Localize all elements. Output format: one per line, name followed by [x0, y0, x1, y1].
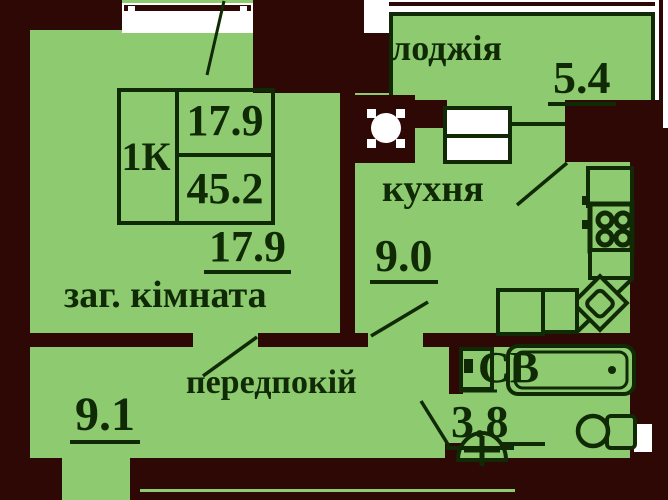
stove-burners [598, 213, 630, 245]
washing-machine-door [464, 359, 473, 373]
kitchen-counter [590, 250, 632, 278]
bathroom-label: СВ [478, 346, 539, 390]
wall-top-middle-lower [364, 33, 389, 93]
kitchen-label: кухня [382, 170, 484, 208]
bathtub-drain [608, 366, 616, 374]
wall-living-hallway-right [258, 333, 368, 347]
window-frame-notch [240, 6, 247, 11]
apartment-type-label: 1К [117, 88, 175, 225]
hallway-area: 9.1 [70, 392, 140, 444]
kitchen-sink-icon [573, 276, 627, 330]
loggia-glazing-outer-top [389, 2, 655, 6]
wall-vent-opening [634, 424, 652, 452]
stove-knob [582, 196, 590, 205]
living-room-area: 17.9 [204, 226, 291, 274]
hallway-label: передпокій [186, 366, 357, 400]
stove-knob [582, 220, 590, 229]
kitchen-window-sill-line [443, 134, 512, 138]
kitchen-area: 9.0 [370, 234, 438, 284]
apartment-total-area: 45.2 [179, 157, 271, 221]
balcony-door-swing [517, 163, 567, 205]
loggia-area: 5.4 [548, 56, 616, 106]
wall-bottom-left [30, 458, 62, 500]
wall-bottom-right [130, 458, 668, 500]
stove-icon [590, 204, 632, 251]
wall-bathroom-left-stub [449, 347, 463, 394]
floor-plan: 1К 17.9 45.2 лоджія 5.4 кухня 9.0 заг. к… [0, 0, 668, 500]
kitchen-counter [588, 168, 632, 206]
window-frame-line [124, 5, 251, 11]
bathroom-area: 3.8 [446, 400, 514, 450]
loggia-label: лоджія [391, 30, 502, 66]
window-frame-notch [128, 6, 135, 11]
loggia-gap-left [364, 0, 389, 33]
bathroom-door-swing [421, 401, 449, 446]
corner-counter-line [578, 279, 632, 331]
toilet-bowl [578, 416, 608, 446]
wall-top-middle [253, 0, 364, 93]
wall-left [0, 28, 30, 500]
apartment-living-area: 17.9 [179, 88, 271, 153]
wall-top-left [0, 0, 122, 30]
wall-living-hallway-left [30, 333, 193, 347]
cabinet-icon [543, 290, 577, 332]
wall-vent-block [352, 95, 415, 163]
living-room-label: заг. кімната [64, 276, 267, 314]
loggia-outer-edge [663, 0, 668, 128]
wall-living-kitchen [340, 93, 355, 334]
entrance-threshold-line [140, 489, 515, 492]
kitchen-door-swing [371, 302, 428, 336]
cabinet-icon [498, 290, 543, 334]
